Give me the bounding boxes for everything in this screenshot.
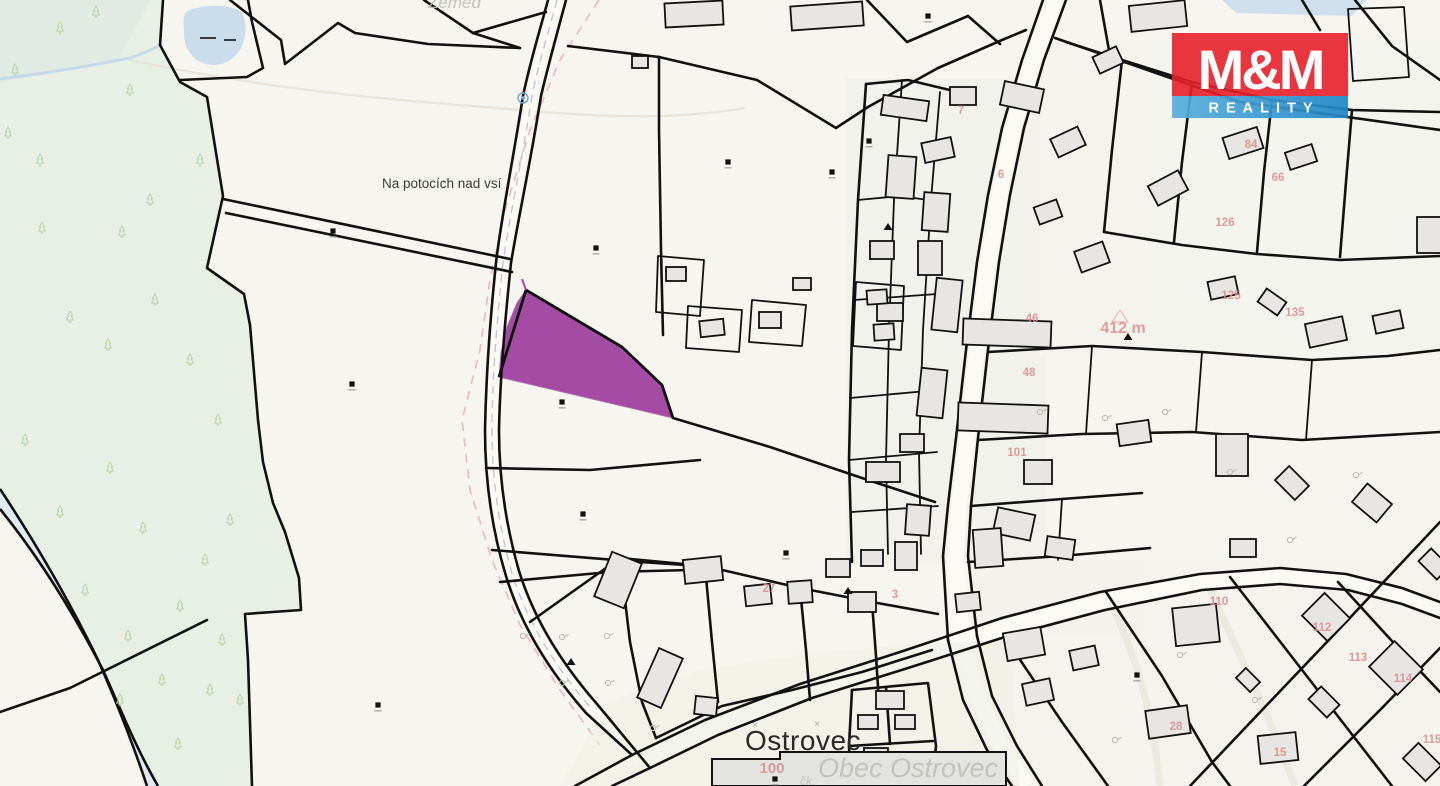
svg-text:114: 114 [1394, 673, 1413, 685]
municipality-fragment-label: čk. [800, 774, 815, 786]
svg-text:100: 100 [759, 760, 784, 777]
svg-text:46: 46 [1026, 313, 1039, 325]
elevation-label: 412 m [1100, 320, 1145, 337]
svg-text:66: 66 [1272, 172, 1285, 184]
svg-text:110: 110 [1210, 596, 1229, 608]
field-name-label: Na potocích nad vsí [382, 176, 502, 191]
logo-reality-text: REALITY [1208, 101, 1319, 117]
svg-text:6: 6 [998, 169, 1004, 181]
svg-text:113: 113 [1349, 652, 1368, 664]
cadastral-map: ×× 412 m 4648101761261251356684110112113… [0, 0, 1440, 786]
top-edge-fragment-label: Zeměd [427, 0, 481, 12]
listing-map-image: ×× 412 m 4648101761261251356684110112113… [0, 0, 1440, 786]
svg-text:3: 3 [892, 589, 898, 601]
village-name-label: Ostrovec [745, 725, 861, 756]
mm-reality-logo: M&M REALITY [1172, 33, 1348, 118]
svg-text:115: 115 [1423, 734, 1440, 746]
svg-text:112: 112 [1313, 622, 1332, 634]
municipality-label: Obec Ostrovec [818, 753, 999, 783]
svg-text:27: 27 [763, 583, 776, 595]
svg-text:125: 125 [1221, 290, 1241, 302]
svg-text:135: 135 [1285, 307, 1305, 319]
svg-text:101: 101 [1007, 447, 1027, 459]
logo-mm-text: M&M [1198, 38, 1323, 101]
svg-text:48: 48 [1023, 367, 1036, 379]
svg-text:15: 15 [1274, 747, 1287, 759]
svg-text:84: 84 [1245, 139, 1258, 151]
svg-text:28: 28 [1170, 721, 1183, 733]
svg-text:126: 126 [1215, 217, 1234, 229]
svg-text:7: 7 [958, 105, 964, 117]
